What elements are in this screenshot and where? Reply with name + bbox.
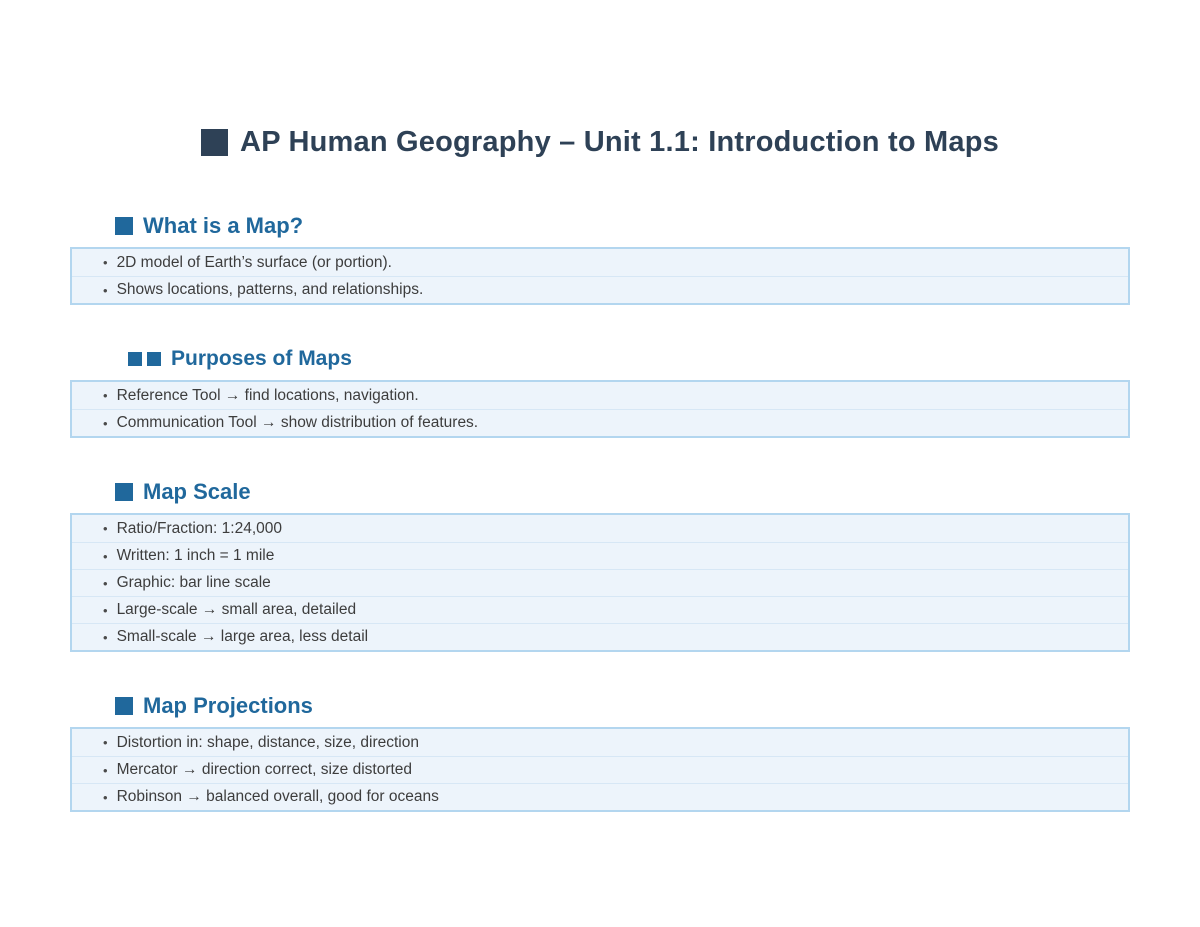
list-item: • Distortion in: shape, distance, size, … xyxy=(72,729,1128,756)
list-item-text: Large-scale → small area, detailed xyxy=(117,601,357,619)
heading-markers xyxy=(115,483,133,501)
list-item-text: Ratio/Fraction: 1:24,000 xyxy=(117,520,282,538)
square-bullet-icon xyxy=(115,483,133,501)
list-item: • Graphic: bar line scale xyxy=(72,569,1128,596)
section-heading-text: Map Projections xyxy=(143,693,313,719)
section-what-is-a-map: What is a Map? • 2D model of Earth’s sur… xyxy=(70,213,1130,305)
list-item: • Reference Tool → find locations, navig… xyxy=(72,382,1128,409)
list-item-text: Graphic: bar line scale xyxy=(117,574,271,592)
list-item-text: Shows locations, patterns, and relations… xyxy=(117,281,424,299)
list-item: • Written: 1 inch = 1 mile xyxy=(72,542,1128,569)
bullet-card: • Reference Tool → find locations, navig… xyxy=(70,380,1130,438)
section-heading: What is a Map? xyxy=(115,213,1130,239)
heading-markers xyxy=(128,352,161,366)
section-heading: Map Projections xyxy=(115,693,1130,719)
bullet-card: • Distortion in: shape, distance, size, … xyxy=(70,727,1130,812)
square-bullet-icon xyxy=(147,352,161,366)
square-bullet-icon xyxy=(115,697,133,715)
bullet-icon: • xyxy=(103,764,108,777)
bullet-icon: • xyxy=(103,604,108,617)
square-bullet-icon xyxy=(115,217,133,235)
list-item-text: Reference Tool → find locations, navigat… xyxy=(117,387,419,405)
heading-markers xyxy=(115,697,133,715)
list-item-text: Distortion in: shape, distance, size, di… xyxy=(117,734,419,752)
bullet-icon: • xyxy=(103,389,108,402)
list-item: • Ratio/Fraction: 1:24,000 xyxy=(72,515,1128,542)
heading-markers xyxy=(115,217,133,235)
square-bullet-icon xyxy=(128,352,142,366)
bullet-icon: • xyxy=(103,417,108,430)
section-heading: Map Scale xyxy=(115,479,1130,505)
section-map-scale: Map Scale • Ratio/Fraction: 1:24,000 • W… xyxy=(70,479,1130,652)
list-item: • Mercator → direction correct, size dis… xyxy=(72,756,1128,783)
document-content: What is a Map? • 2D model of Earth’s sur… xyxy=(70,213,1130,812)
square-bullet-icon xyxy=(201,129,228,156)
section-map-projections: Map Projections • Distortion in: shape, … xyxy=(70,693,1130,812)
list-item: • Small-scale → large area, less detail xyxy=(72,623,1128,650)
bullet-icon: • xyxy=(103,791,108,804)
list-item: • Robinson → balanced overall, good for … xyxy=(72,783,1128,810)
bullet-icon: • xyxy=(103,736,108,749)
list-item-text: 2D model of Earth’s surface (or portion)… xyxy=(117,254,392,272)
list-item-text: Mercator → direction correct, size disto… xyxy=(117,761,412,779)
section-heading-text: Purposes of Maps xyxy=(171,346,352,372)
page-title-row: AP Human Geography – Unit 1.1: Introduct… xyxy=(0,127,1200,157)
page-title: AP Human Geography – Unit 1.1: Introduct… xyxy=(240,126,999,159)
section-purposes-of-maps: Purposes of Maps • Reference Tool → find… xyxy=(70,346,1130,438)
bullet-card: • Ratio/Fraction: 1:24,000 • Written: 1 … xyxy=(70,513,1130,652)
bullet-icon: • xyxy=(103,256,108,269)
section-heading: Purposes of Maps xyxy=(128,346,1130,372)
list-item: • Large-scale → small area, detailed xyxy=(72,596,1128,623)
list-item-text: Small-scale → large area, less detail xyxy=(117,628,369,646)
list-item: • Communication Tool → show distribution… xyxy=(72,409,1128,436)
bullet-icon: • xyxy=(103,550,108,563)
document-page: AP Human Geography – Unit 1.1: Introduct… xyxy=(0,0,1200,927)
bullet-icon: • xyxy=(103,522,108,535)
bullet-icon: • xyxy=(103,284,108,297)
section-heading-text: What is a Map? xyxy=(143,213,303,239)
list-item-text: Robinson → balanced overall, good for oc… xyxy=(117,788,439,806)
bullet-icon: • xyxy=(103,631,108,644)
list-item-text: Communication Tool → show distribution o… xyxy=(117,414,479,432)
bullet-icon: • xyxy=(103,577,108,590)
list-item: • Shows locations, patterns, and relatio… xyxy=(72,276,1128,303)
list-item-text: Written: 1 inch = 1 mile xyxy=(117,547,275,565)
list-item: • 2D model of Earth’s surface (or portio… xyxy=(72,249,1128,276)
section-heading-text: Map Scale xyxy=(143,479,251,505)
bullet-card: • 2D model of Earth’s surface (or portio… xyxy=(70,247,1130,305)
